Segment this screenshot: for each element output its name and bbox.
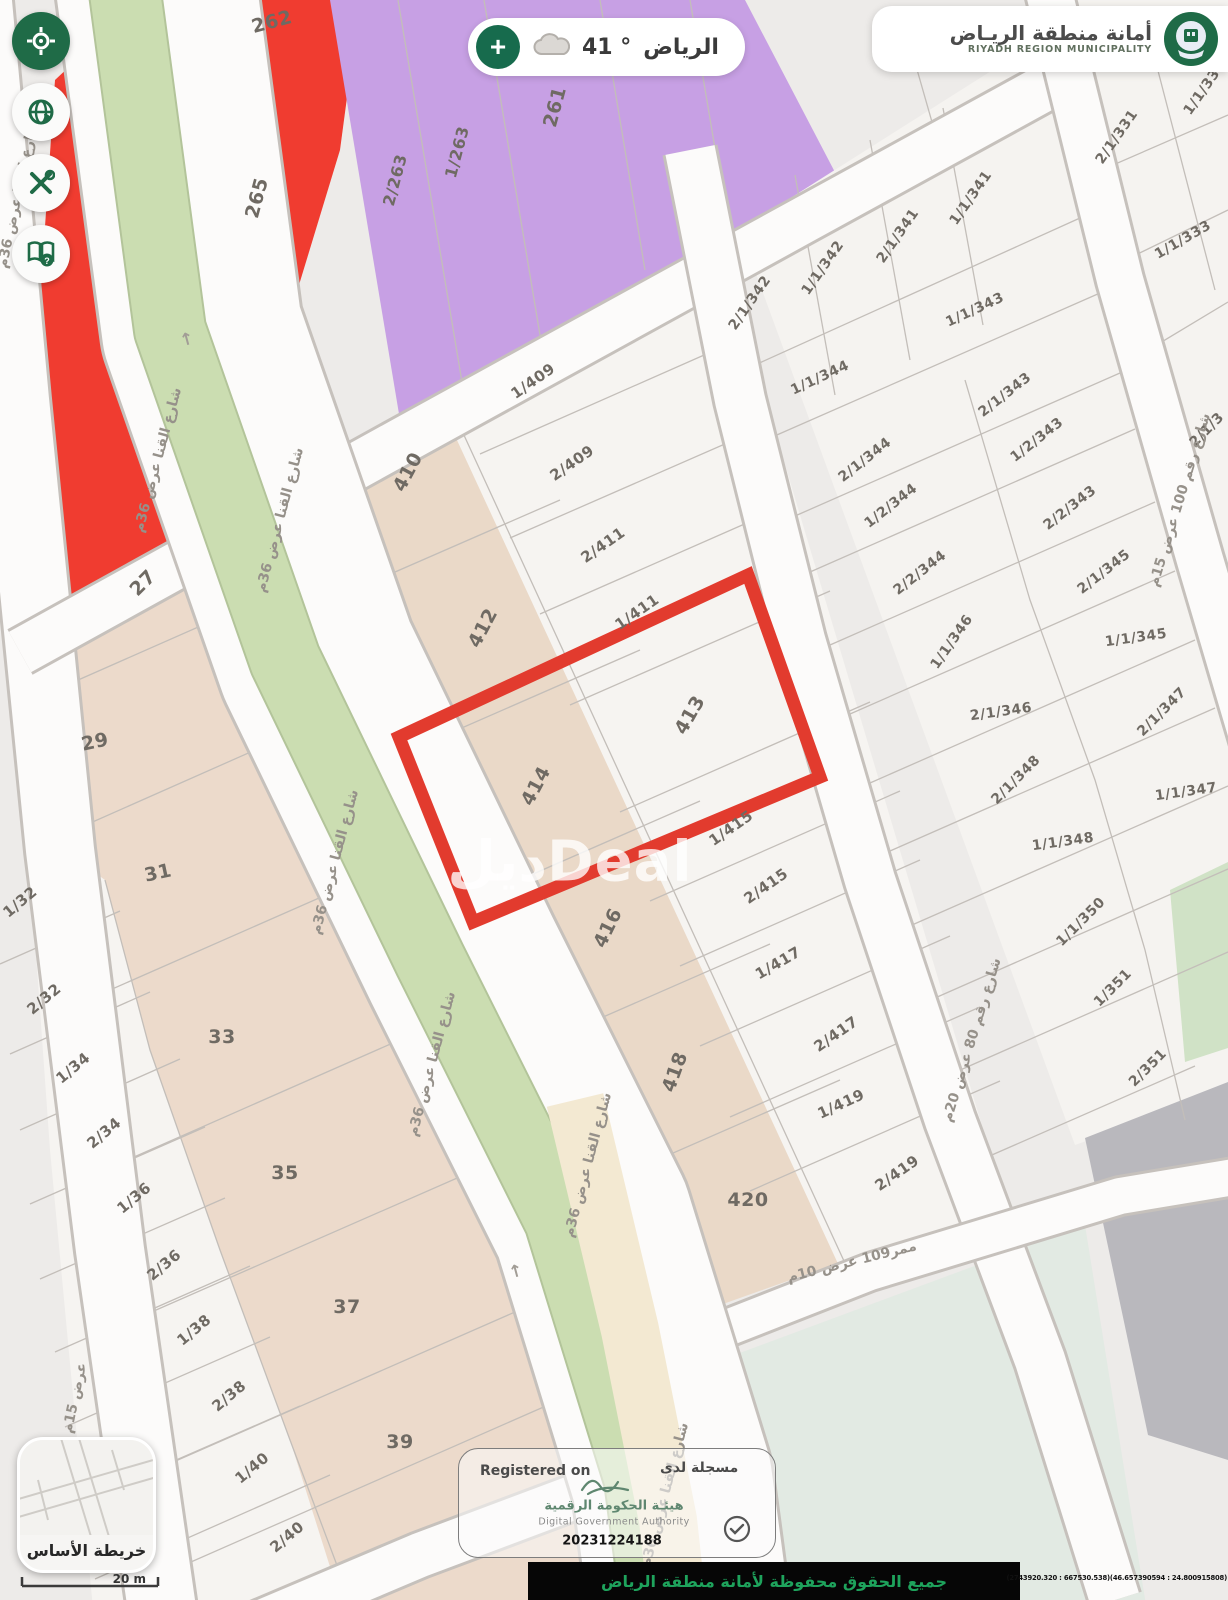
registered-on-label-ar: مسجلة لدى bbox=[660, 1460, 738, 1476]
weather-city: الرياض bbox=[643, 35, 719, 60]
copyright-bar: جميع الحقوق محفوظة لأمانة منطقة الرياض bbox=[528, 1562, 1020, 1600]
help-book-button[interactable]: ? bbox=[12, 225, 70, 283]
globe-button[interactable] bbox=[12, 83, 70, 141]
parcel-label-420[interactable]: 420 bbox=[727, 1189, 768, 1211]
dga-name-ar: هيئـة الحكومة الرقمية bbox=[544, 1499, 683, 1514]
municipality-banner: أمانة منطقة الريـاض RIYADH REGION MUNICI… bbox=[872, 6, 1228, 72]
map-toolbar: ? bbox=[12, 12, 70, 283]
map-app: 2622652/2631/263261410412414416418420413… bbox=[0, 0, 1228, 1600]
municipality-title-ar: أمانة منطقة الريـاض bbox=[950, 22, 1152, 45]
registration-number: 20231224188 bbox=[562, 1534, 662, 1549]
rights-text: جميع الحقوق محفوظة لأمانة منطقة الرياض bbox=[601, 1572, 947, 1591]
parcel-label-39[interactable]: 39 bbox=[386, 1431, 413, 1453]
municipality-title-en: RIYADH REGION MUNICIPALITY bbox=[950, 45, 1152, 56]
cloud-icon bbox=[532, 32, 570, 62]
parcel-label-33[interactable]: 33 bbox=[208, 1026, 235, 1048]
parcel-label-37[interactable]: 37 bbox=[333, 1296, 360, 1318]
parcel-label-35[interactable]: 35 bbox=[271, 1162, 298, 1184]
svg-text:?: ? bbox=[44, 256, 50, 266]
basemap-switcher[interactable]: خريطة الأساس bbox=[17, 1437, 156, 1573]
add-button[interactable]: + bbox=[476, 25, 520, 69]
basemap-label: خريطة الأساس bbox=[20, 1541, 153, 1560]
dga-logo-icon bbox=[578, 1472, 634, 1498]
tools-icon bbox=[27, 169, 55, 197]
basemap-thumbnail bbox=[20, 1440, 153, 1535]
tools-button[interactable] bbox=[12, 154, 70, 212]
map-canvas[interactable] bbox=[0, 0, 1228, 1600]
temperature-value: 41 ° bbox=[582, 35, 631, 60]
deal-watermark: ديلDeal bbox=[447, 830, 692, 895]
registered-on-label: Registered on bbox=[480, 1463, 591, 1479]
globe-icon bbox=[27, 98, 55, 126]
checkmark-icon bbox=[723, 1515, 751, 1543]
scale-value: 20 m bbox=[113, 1572, 146, 1586]
help-book-icon: ? bbox=[26, 240, 56, 268]
weather-widget[interactable]: + 41 ° الرياض bbox=[468, 18, 745, 76]
map-scalebar: 20 m bbox=[20, 1574, 160, 1590]
locate-target-icon bbox=[26, 26, 56, 56]
dga-name-en: Digital Government Authority bbox=[538, 1517, 689, 1528]
map-coordinates: (2743920.320 : 667530.538)(46.657390594 … bbox=[1006, 1574, 1227, 1582]
locate-target-button[interactable] bbox=[12, 12, 70, 70]
municipality-logo-icon bbox=[1164, 12, 1218, 66]
